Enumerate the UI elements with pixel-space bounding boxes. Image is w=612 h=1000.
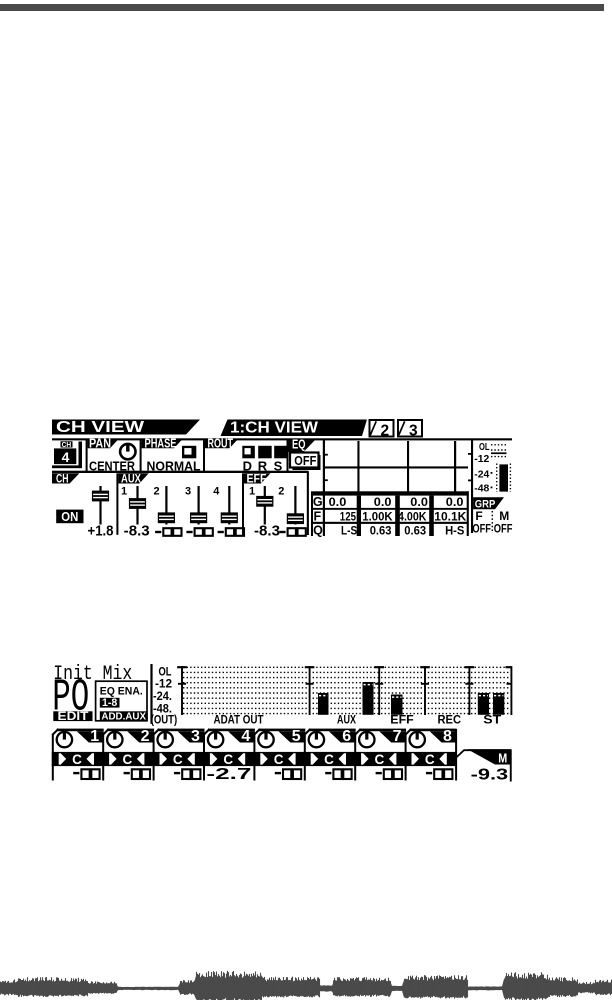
svg-text:F: F <box>475 509 482 523</box>
svg-text:AUX: AUX <box>337 715 356 727</box>
svg-text:6: 6 <box>342 728 351 745</box>
svg-text:1: 1 <box>90 728 99 745</box>
svg-text:7: 7 <box>393 728 402 745</box>
svg-text:G: G <box>313 495 323 509</box>
svg-text:4: 4 <box>213 486 220 498</box>
svg-text:S: S <box>274 458 283 473</box>
svg-text:-8.3: -8.3 <box>254 523 280 539</box>
svg-text:EFF: EFF <box>247 472 267 486</box>
svg-text:-9.3: -9.3 <box>471 766 509 783</box>
svg-text:1.00K: 1.00K <box>362 509 393 523</box>
svg-text:3: 3 <box>185 486 191 498</box>
svg-text:(OUT): (OUT) <box>151 715 178 727</box>
svg-text:C: C <box>173 752 183 767</box>
svg-text:C: C <box>72 752 82 767</box>
svg-text:C: C <box>425 752 435 767</box>
svg-text:ON: ON <box>61 510 78 524</box>
svg-text:L-S: L-S <box>341 523 357 537</box>
svg-text:0.0: 0.0 <box>410 495 428 509</box>
svg-text:-12: -12 <box>474 453 489 465</box>
svg-text:8: 8 <box>443 728 452 745</box>
svg-text:ADAT OUT: ADAT OUT <box>214 715 264 727</box>
svg-text:M: M <box>499 509 509 523</box>
svg-text:AUX: AUX <box>121 472 141 486</box>
svg-text:0.0: 0.0 <box>446 495 464 509</box>
svg-text:4: 4 <box>241 728 250 745</box>
svg-text:2: 2 <box>278 486 284 498</box>
svg-text:1: 1 <box>121 486 127 498</box>
svg-text:4: 4 <box>62 449 70 465</box>
svg-text:OL: OL <box>479 441 490 453</box>
svg-text:PAN: PAN <box>89 435 111 450</box>
svg-text:C: C <box>324 752 334 767</box>
svg-text:C: C <box>223 752 233 767</box>
svg-text:-8.3: -8.3 <box>124 523 150 539</box>
svg-text:-48: -48 <box>474 482 489 494</box>
svg-text:0.0: 0.0 <box>374 495 392 509</box>
svg-text:2: 2 <box>380 422 389 439</box>
svg-text:1: 1 <box>249 486 255 498</box>
svg-text:EFF: EFF <box>390 715 414 727</box>
svg-text:2: 2 <box>141 728 150 745</box>
svg-text:H-S: H-S <box>445 523 464 537</box>
svg-text:Q: Q <box>313 523 323 537</box>
svg-text:0.63: 0.63 <box>404 523 426 537</box>
svg-text:3: 3 <box>409 422 418 439</box>
svg-text:4.00K: 4.00K <box>398 509 427 523</box>
svg-text:F: F <box>313 509 321 523</box>
svg-text:ROUT: ROUT <box>208 435 234 450</box>
svg-text:0.63: 0.63 <box>370 523 392 537</box>
svg-text:C: C <box>274 752 284 767</box>
svg-text:PHASE: PHASE <box>145 435 177 450</box>
svg-text:EQ: EQ <box>292 437 306 452</box>
svg-text:125: 125 <box>340 509 356 523</box>
svg-text:ADD.AUX: ADD.AUX <box>101 711 146 723</box>
svg-text:ST: ST <box>483 715 501 727</box>
svg-text:REC: REC <box>438 715 462 727</box>
svg-text:M: M <box>498 751 507 766</box>
svg-text:+1.8: +1.8 <box>88 523 114 539</box>
svg-text:-24: -24 <box>474 468 489 480</box>
svg-text:C: C <box>123 752 133 767</box>
svg-text:0.0: 0.0 <box>329 495 347 509</box>
svg-text:-2.7: -2.7 <box>206 766 251 783</box>
svg-text:EDIT: EDIT <box>58 711 89 723</box>
svg-text:CH: CH <box>56 472 69 486</box>
svg-text:10.1K: 10.1K <box>434 509 466 523</box>
svg-text:C: C <box>375 752 385 767</box>
svg-text:2: 2 <box>153 486 159 498</box>
svg-text:OFF: OFF <box>494 523 513 535</box>
svg-text:5: 5 <box>292 728 301 745</box>
svg-text:EQ ENA.: EQ ENA. <box>100 685 143 697</box>
svg-text:1-8: 1-8 <box>102 697 117 709</box>
svg-text:OFF: OFF <box>472 523 491 535</box>
svg-text:1:CH VIEW: 1:CH VIEW <box>230 420 319 437</box>
svg-text:CH: CH <box>62 440 72 449</box>
svg-text:NORMAL: NORMAL <box>147 458 201 473</box>
svg-text:CH VIEW: CH VIEW <box>56 419 145 436</box>
svg-text:-48.: -48. <box>153 701 172 715</box>
svg-text:OFF: OFF <box>294 453 316 468</box>
svg-text:3: 3 <box>191 728 200 745</box>
